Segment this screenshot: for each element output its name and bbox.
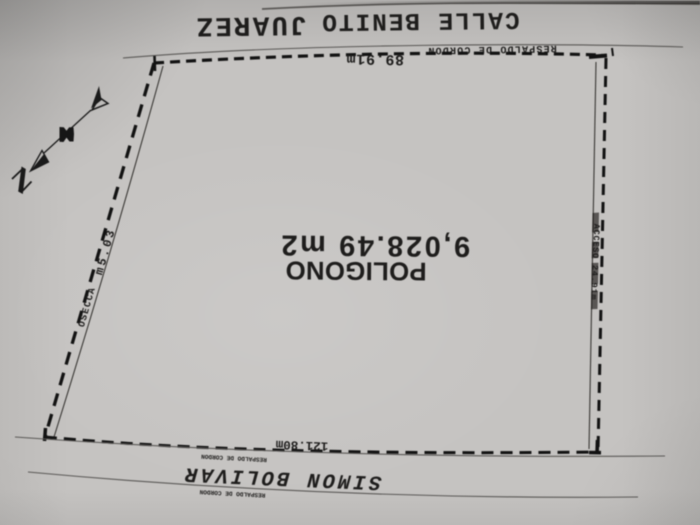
- svg-text:JUAREZ: JUAREZ: [194, 8, 307, 40]
- svg-text:POLIGONO: POLIGONO: [285, 256, 427, 285]
- svg-text:SIMON BOLIVAR: SIMON BOLIVAR: [180, 461, 385, 492]
- svg-text:CALLE BENITO: CALLE BENITO: [320, 5, 520, 34]
- svg-text:ACCESO 24.91m: ACCESO 24.91m: [588, 223, 601, 300]
- svg-text:RESPALDO DE CORDON: RESPALDO DE CORDON: [199, 488, 265, 498]
- svg-text:m5.03: m5.03: [92, 227, 119, 277]
- svg-text:OSECCA: OSECCA: [76, 286, 98, 329]
- svg-text:RESPALDO DE CORDON: RESPALDO DE CORDON: [201, 453, 267, 463]
- svg-text:121.80m: 121.80m: [275, 437, 328, 453]
- svg-text:89.91m: 89.91m: [346, 50, 405, 68]
